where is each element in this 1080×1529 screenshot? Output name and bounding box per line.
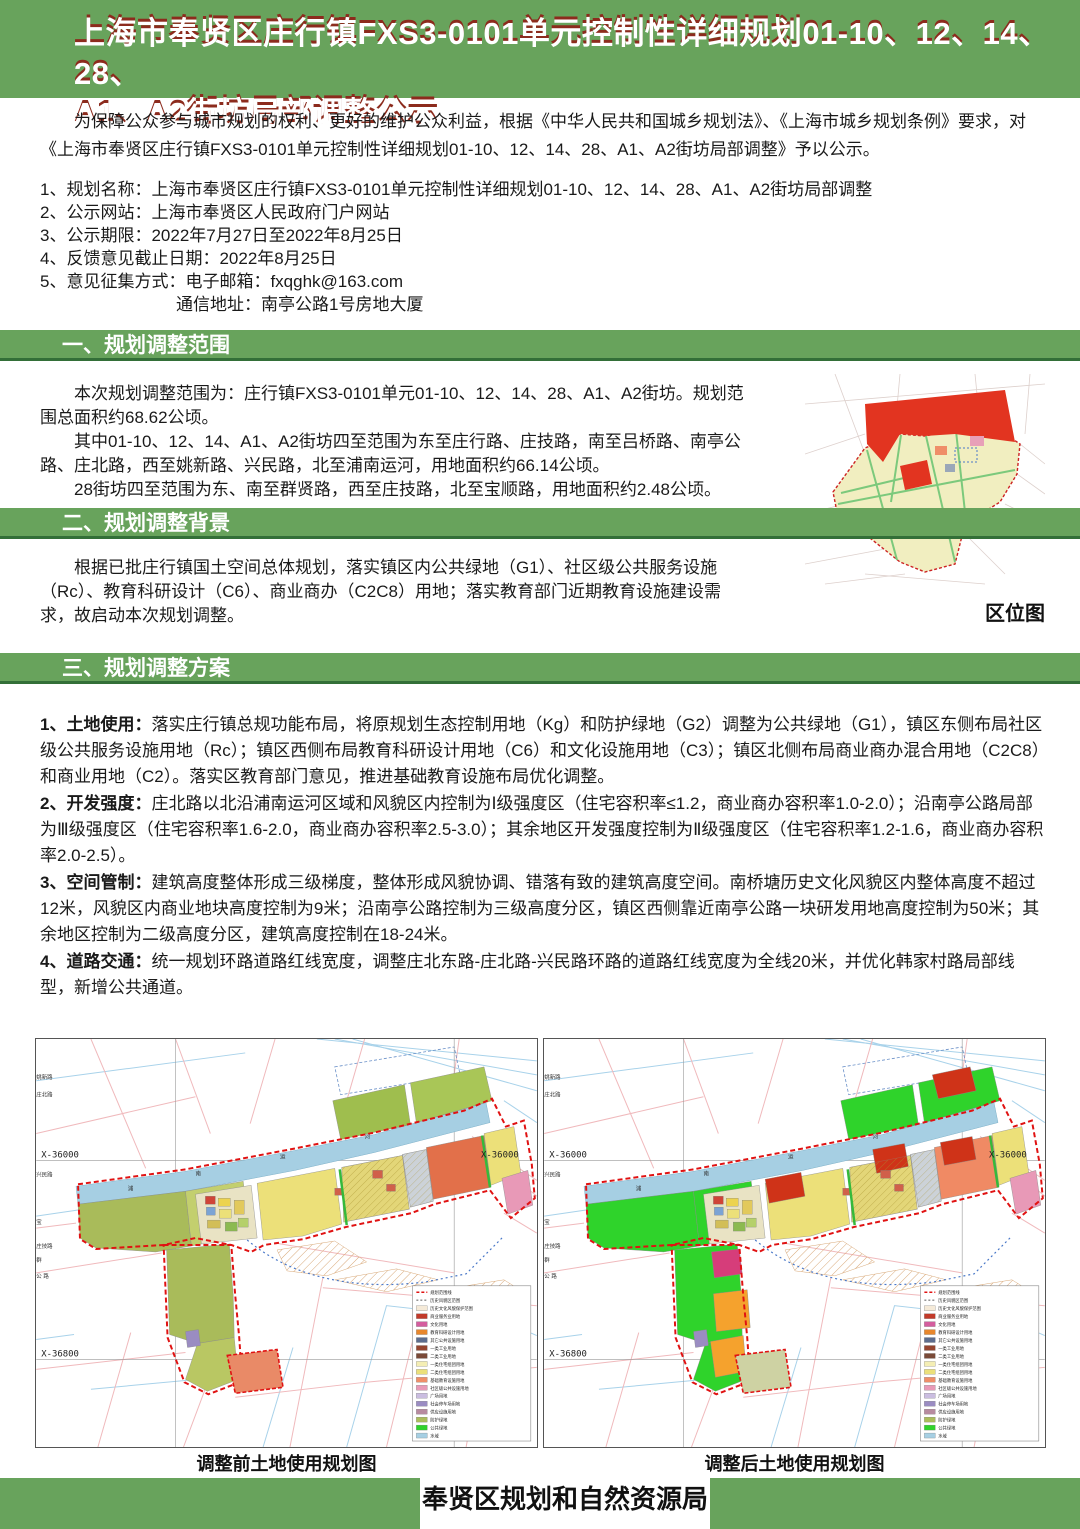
svg-text:南: 南 (195, 1169, 201, 1177)
section-background-body: 根据已批庄行镇国土空间总体规划，落实镇区内公共绿地（G1）、社区级公共服务设施（… (40, 556, 745, 628)
plan-item: 4、道路交通：统一规划环路道路红线宽度，调整庄北东路-庄北路-兴民路环路的道路红… (40, 949, 1045, 1001)
svg-text:一类住宅组团用地: 一类住宅组团用地 (430, 1361, 465, 1368)
page-title-line1: 上海市奉贤区庄行镇FXS3-0101单元控制性详细规划01-10、12、14、2… (74, 14, 1054, 94)
parcel-28 (227, 1349, 283, 1393)
plan-item: 2、开发强度：庄北路以北沿浦南运河区域和风貌区内控制为Ⅰ级强度区（住宅容积率≤1… (40, 791, 1045, 869)
svg-text:基础教育设施用地: 基础教育设施用地 (938, 1377, 973, 1384)
location-map-caption: 区位图 (845, 597, 1045, 626)
svg-text:历史风貌区范围: 历史风貌区范围 (938, 1297, 968, 1304)
locmap-salmon-parcel (935, 446, 947, 455)
svg-text:水域: 水域 (430, 1433, 439, 1440)
svg-text:文化用地: 文化用地 (938, 1321, 956, 1328)
svg-text:姚新路: 姚新路 (36, 1073, 53, 1081)
svg-text:商业服务业用地: 商业服务业用地 (430, 1313, 461, 1320)
list-item: 3、公示期限：2022年7月27日至2022年8月25日 (40, 224, 1042, 247)
plan-item-label: 1、土地使用： (40, 715, 151, 734)
svg-text:二类工业用地: 二类工业用地 (938, 1353, 964, 1360)
svg-text:浦: 浦 (636, 1184, 642, 1192)
svg-text:兴民路: 兴民路 (36, 1170, 53, 1178)
svg-text:历史风貌区范围: 历史风貌区范围 (430, 1297, 460, 1304)
paragraph: 其中01-10、12、14、A1、A2街坊四至范围为东至庄行路、庄技路，南至吕桥… (40, 430, 745, 478)
svg-text:公 路: 公 路 (36, 1272, 49, 1280)
svg-text:庄北路: 庄北路 (36, 1091, 53, 1099)
section-plan-body: 1、土地使用：落实庄行镇总规功能布局，将原规划生态控制用地（Kg）和防护绿地（G… (40, 712, 1045, 1002)
svg-text:教育科研设计用地: 教育科研设计用地 (430, 1329, 465, 1336)
svg-text:河: 河 (365, 1133, 371, 1141)
svg-text:社会停车场用地: 社会停车场用地 (430, 1401, 461, 1408)
title-banner: 上海市奉贤区庄行镇FXS3-0101单元控制性详细规划01-10、12、14、2… (0, 0, 1080, 98)
svg-text:群: 群 (36, 1256, 42, 1264)
paragraph: 28街坊四至范围为东、南至群贤路，西至庄技路，北至宝顺路，用地面积约2.48公顷… (40, 478, 745, 502)
svg-text:一类住宅组团用地: 一类住宅组团用地 (938, 1361, 973, 1368)
svg-text:公共绿地: 公共绿地 (430, 1425, 448, 1432)
parcel-28 (735, 1349, 791, 1393)
svg-text:历史文化风貌保护范围: 历史文化风貌保护范围 (430, 1305, 473, 1312)
plan-item: 3、空间管制：建筑高度整体形成三级梯度，整体形成风貌协调、错落有致的建筑高度空间… (40, 870, 1045, 948)
svg-text:广场用地: 广场用地 (430, 1393, 448, 1400)
section-heading-background: 二、规划调整背景 (0, 508, 1080, 539)
section-heading-scope: 一、规划调整范围 (0, 330, 1080, 361)
svg-text:南: 南 (703, 1169, 709, 1177)
svg-text:一类工业用地: 一类工业用地 (938, 1345, 964, 1352)
svg-text:一类工业用地: 一类工业用地 (430, 1345, 456, 1352)
map-legend: 规划范围线历史风貌区范围历史文化风貌保护范围商业服务业用地文化用地教育科研设计用… (920, 1286, 1038, 1441)
svg-text:规划范围线: 规划范围线 (430, 1289, 452, 1296)
svg-text:X-36000: X-36000 (549, 1150, 587, 1160)
svg-text:规划范围线: 规划范围线 (938, 1289, 960, 1296)
svg-text:公共绿地: 公共绿地 (938, 1425, 956, 1432)
svg-text:供应设施用地: 供应设施用地 (430, 1409, 456, 1416)
announcement-page: 上海市奉贤区庄行镇FXS3-0101单元控制性详细规划01-10、12、14、2… (0, 0, 1080, 1529)
footer-agency: 奉贤区规划和自然资源局 (420, 1470, 710, 1529)
svg-text:防护绿地: 防护绿地 (938, 1417, 956, 1424)
list-item-address: 通信地址：南亭公路1号房地大厦 (40, 293, 1042, 316)
map-legend: 规划范围线历史风貌区范围历史文化风貌保护范围商业服务业用地文化用地教育科研设计用… (412, 1286, 530, 1441)
svg-text:供应设施用地: 供应设施用地 (938, 1409, 964, 1416)
list-item: 4、反馈意见截止日期：2022年8月25日 (40, 247, 1042, 270)
svg-text:X-36000: X-36000 (41, 1150, 79, 1160)
paragraph: 根据已批庄行镇国土空间总体规划，落实镇区内公共绿地（G1）、社区级公共服务设施（… (40, 556, 745, 628)
svg-text:文化用地: 文化用地 (430, 1321, 448, 1328)
plan-item-text: 统一规划环路道路红线宽度，调整庄北东路-庄北路-兴民路环路的道路红线宽度为全线2… (40, 952, 1015, 997)
locmap-pink-parcel (970, 436, 984, 446)
landuse-map-svg: 浦南运河庄北路姚新路兴民路庄技路公 路群宝庄行路X-36000X-36000X-… (36, 1039, 537, 1447)
svg-text:公 路: 公 路 (544, 1272, 557, 1280)
svg-text:X-36800: X-36800 (549, 1349, 587, 1359)
svg-text:社区级公共设施用地: 社区级公共设施用地 (430, 1385, 469, 1392)
plan-item: 1、土地使用：落实庄行镇总规功能布局，将原规划生态控制用地（Kg）和防护绿地（G… (40, 712, 1045, 790)
section-scope-body: 本次规划调整范围为：庄行镇FXS3-0101单元01-10、12、14、28、A… (40, 382, 745, 502)
svg-text:庄北路: 庄北路 (544, 1091, 561, 1099)
svg-text:运: 运 (788, 1152, 794, 1160)
svg-text:浦: 浦 (128, 1184, 134, 1192)
svg-text:历史文化风貌保护范围: 历史文化风貌保护范围 (938, 1305, 981, 1312)
svg-text:庄技路: 庄技路 (36, 1242, 53, 1250)
svg-text:其它公共设施用地: 其它公共设施用地 (430, 1337, 465, 1344)
svg-text:教育科研设计用地: 教育科研设计用地 (938, 1329, 973, 1336)
svg-text:基础教育设施用地: 基础教育设施用地 (430, 1377, 465, 1384)
svg-text:姚新路: 姚新路 (544, 1073, 561, 1081)
svg-text:兴民路: 兴民路 (544, 1170, 561, 1178)
svg-text:X-36000: X-36000 (481, 1150, 519, 1160)
svg-text:宝: 宝 (36, 1218, 42, 1226)
location-map-svg (805, 374, 1045, 596)
svg-text:群: 群 (544, 1256, 550, 1264)
list-item: 2、公示网站：上海市奉贤区人民政府门户网站 (40, 201, 1042, 224)
plan-item-text: 落实庄行镇总规功能布局，将原规划生态控制用地（Kg）和防护绿地（G2）调整为公共… (40, 715, 1042, 786)
svg-text:二类住宅组团用地: 二类住宅组团用地 (430, 1369, 465, 1376)
plan-item-text: 庄北路以北沿浦南运河区域和风貌区内控制为Ⅰ级强度区（住宅容积率≤1.2，商业商办… (40, 794, 1043, 865)
locmap-gray-parcel (945, 464, 955, 472)
location-map (805, 374, 1045, 596)
landuse-map-before: 浦南运河庄北路姚新路兴民路庄技路公 路群宝庄行路X-36000X-36000X-… (35, 1038, 538, 1448)
svg-text:其它公共设施用地: 其它公共设施用地 (938, 1337, 973, 1344)
svg-text:运: 运 (280, 1152, 286, 1160)
landuse-map-svg: 浦南运河庄北路姚新路兴民路庄技路公 路群宝庄行路X-36000X-36000X-… (544, 1039, 1045, 1447)
list-item: 1、规划名称：上海市奉贤区庄行镇FXS3-0101单元控制性详细规划01-10、… (40, 178, 1042, 201)
list-item-email: 5、意见征集方式：电子邮箱：fxqghk@163.com (40, 270, 1042, 293)
svg-text:水域: 水域 (938, 1433, 947, 1440)
svg-text:广场用地: 广场用地 (938, 1393, 956, 1400)
paragraph: 本次规划调整范围为：庄行镇FXS3-0101单元01-10、12、14、28、A… (40, 382, 745, 430)
svg-text:商业服务业用地: 商业服务业用地 (938, 1313, 969, 1320)
svg-text:社区级公共设施用地: 社区级公共设施用地 (938, 1385, 977, 1392)
plan-item-label: 4、道路交通： (40, 952, 151, 971)
info-list: 1、规划名称：上海市奉贤区庄行镇FXS3-0101单元控制性详细规划01-10、… (40, 178, 1042, 316)
svg-text:防护绿地: 防护绿地 (430, 1417, 448, 1424)
plan-item-label: 3、空间管制： (40, 873, 151, 892)
svg-text:X-36000: X-36000 (989, 1150, 1027, 1160)
svg-text:宝: 宝 (544, 1218, 550, 1226)
landuse-map-after: 浦南运河庄北路姚新路兴民路庄技路公 路群宝庄行路X-36000X-36000X-… (543, 1038, 1046, 1448)
locmap-plan-area (833, 430, 1020, 572)
plan-item-label: 2、开发强度： (40, 794, 151, 813)
plan-item-text: 建筑高度整体形成三级梯度，整体形成风貌协调、错落有致的建筑高度空间。南桥塘历史文… (40, 873, 1039, 944)
svg-text:社会停车场用地: 社会停车场用地 (938, 1401, 969, 1408)
intro-paragraph: 为保障公众参与城市规划的权利、更好的维护公众利益，根据《中华人民共和国城乡规划法… (40, 108, 1042, 164)
svg-text:二类住宅组团用地: 二类住宅组团用地 (938, 1369, 973, 1376)
svg-text:庄技路: 庄技路 (544, 1242, 561, 1250)
section-heading-plan: 三、规划调整方案 (0, 653, 1080, 684)
svg-text:二类工业用地: 二类工业用地 (430, 1353, 456, 1360)
svg-text:河: 河 (873, 1133, 879, 1141)
svg-text:X-36800: X-36800 (41, 1349, 79, 1359)
